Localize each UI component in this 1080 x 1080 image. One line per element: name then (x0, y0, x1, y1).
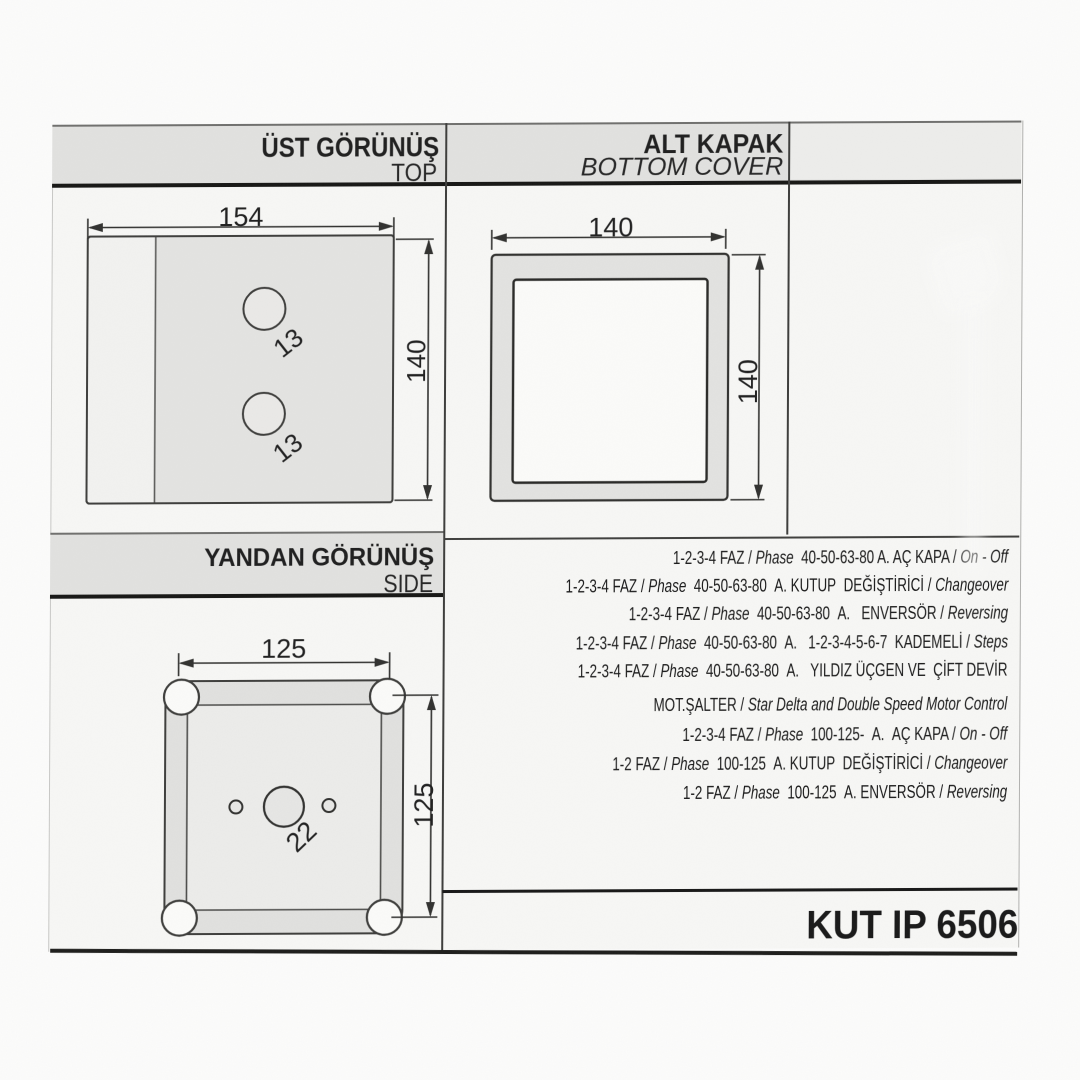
svg-text:140: 140 (401, 339, 431, 383)
svg-text:154: 154 (218, 202, 263, 232)
svg-text:140: 140 (733, 359, 763, 404)
svg-text:125: 125 (409, 783, 439, 828)
svg-text:125: 125 (261, 634, 306, 664)
svg-text:140: 140 (588, 212, 633, 242)
